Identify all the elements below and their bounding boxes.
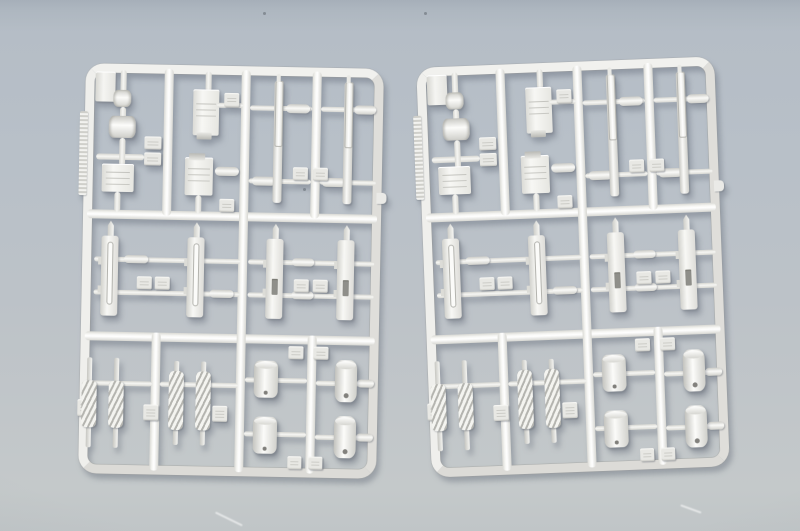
connector-spindle: [633, 250, 655, 259]
gun-receiver: [265, 239, 284, 319]
recoil-spring: [195, 361, 212, 445]
ammo-drum: [684, 405, 708, 448]
part-number-tab: [655, 270, 670, 284]
dust-speck: [263, 12, 266, 15]
part-number-tab: [635, 338, 650, 352]
recoil-spring: [81, 357, 98, 447]
connector-spindle: [707, 421, 724, 430]
part-number-tab: [219, 199, 234, 212]
part-number-tab: [557, 195, 572, 209]
part-number-tab: [294, 279, 309, 292]
ammo-drum: [333, 416, 356, 458]
hull-box: [184, 157, 213, 196]
ammo-canister: [254, 360, 279, 397]
ejector-nub: [714, 180, 724, 191]
part-number-tab: [480, 153, 497, 167]
ejector-nub: [376, 193, 386, 204]
connector-spindle: [292, 258, 314, 266]
ammo-canister: [604, 410, 629, 448]
part-number-tab: [556, 89, 572, 104]
gun-receiver: [186, 237, 205, 317]
connector-spindle: [291, 291, 313, 299]
part-number-tab: [155, 277, 170, 290]
part-number-tab: [479, 137, 496, 151]
connector-spindle: [551, 163, 575, 173]
gun-receiver: [607, 232, 627, 313]
roller-knob: [445, 92, 464, 110]
corner-block: [427, 75, 448, 106]
gate-bar: [454, 140, 461, 168]
hull-box: [525, 87, 553, 134]
connector-spindle: [466, 256, 490, 265]
part-number-tab: [479, 277, 494, 291]
dust-speck: [424, 12, 427, 15]
part-number-tab: [287, 456, 301, 469]
part-number-tab: [313, 168, 328, 181]
recoil-spring: [108, 358, 125, 448]
equipment-box: [438, 166, 471, 195]
part-number-tab: [636, 271, 651, 285]
ammo-drum: [335, 360, 358, 402]
connector-spindle: [209, 290, 233, 298]
ammo-canister: [601, 354, 626, 392]
part-number-tab: [224, 93, 239, 107]
part-number-tab: [649, 158, 664, 172]
gate-bar: [119, 138, 126, 166]
connector-spindle: [619, 96, 643, 106]
part-number-tab: [562, 402, 578, 419]
connector-spindle: [286, 104, 310, 113]
part-number-tab: [313, 280, 328, 293]
connector-spindle: [124, 255, 148, 263]
gun-receiver: [678, 229, 698, 310]
recoil-spring: [517, 360, 535, 445]
sprue-right: [416, 56, 730, 477]
part-number-tab: [313, 347, 328, 360]
serrated-strip: [78, 111, 88, 195]
connector-spindle: [356, 433, 373, 441]
part-number-tab: [497, 276, 512, 290]
connector-spindle: [354, 105, 376, 114]
gun-receiver: [528, 235, 548, 316]
gun-receiver: [100, 236, 119, 316]
gun-receiver: [442, 238, 462, 319]
gate-bar: [114, 192, 120, 212]
roller-knob: [113, 90, 131, 107]
surface-scratch: [215, 512, 243, 526]
ammo-canister: [253, 416, 278, 453]
recoil-spring: [544, 359, 562, 444]
recoil-spring: [168, 361, 185, 445]
sprue-left: [78, 63, 384, 479]
connector-spindle: [705, 367, 722, 376]
part-number-tab: [640, 448, 654, 462]
part-number-tab: [629, 159, 644, 173]
photo-stage: [0, 0, 800, 531]
connector-spindle: [215, 167, 239, 176]
part-number-tab: [144, 152, 161, 165]
part-number-tab: [308, 457, 322, 470]
part-number-tab: [493, 405, 509, 422]
roller-cylinder: [109, 116, 136, 139]
connector-spindle: [357, 379, 374, 387]
roller-cylinder: [442, 118, 470, 141]
connector-spindle: [553, 286, 577, 295]
ammo-drum: [682, 349, 706, 392]
gun-receiver: [336, 240, 355, 320]
connector-spindle: [686, 94, 708, 104]
equipment-box: [102, 164, 135, 193]
part-number-tab: [288, 346, 303, 359]
hull-box: [193, 89, 220, 135]
part-number-tab: [661, 447, 675, 461]
surface-scratch: [680, 504, 701, 513]
hull-box: [521, 155, 550, 194]
part-number-tab: [144, 136, 161, 149]
gate-bar: [195, 195, 201, 213]
part-number-tab: [137, 276, 152, 289]
part-number-tab: [212, 406, 227, 422]
gate-bar: [533, 193, 540, 211]
part-number-tab: [143, 404, 158, 420]
gate-bar: [452, 194, 459, 214]
part-number-tab: [660, 337, 675, 351]
part-number-tab: [293, 167, 308, 180]
